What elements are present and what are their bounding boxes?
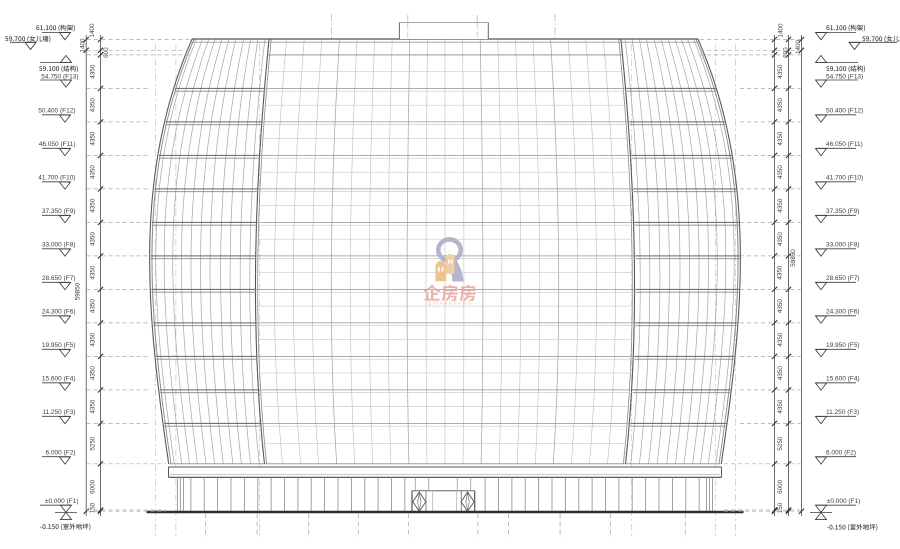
svg-text:±0.000 (F1): ±0.000 (F1) bbox=[45, 498, 79, 505]
svg-text:4350: 4350 bbox=[89, 399, 96, 414]
svg-text:600: 600 bbox=[103, 47, 110, 58]
svg-text:59850: 59850 bbox=[790, 249, 797, 267]
svg-text:50.400 (F12): 50.400 (F12) bbox=[826, 108, 863, 115]
svg-text:4350: 4350 bbox=[777, 332, 784, 347]
svg-text:QIFANGFANG: QIFANGFANG bbox=[428, 301, 473, 306]
svg-text:6.000 (F2): 6.000 (F2) bbox=[46, 449, 76, 456]
svg-text:4350: 4350 bbox=[89, 366, 96, 381]
svg-text:24.300 (F6): 24.300 (F6) bbox=[826, 309, 860, 316]
svg-text:33.000 (F8): 33.000 (F8) bbox=[42, 242, 76, 249]
svg-text:28.650 (F7): 28.650 (F7) bbox=[42, 275, 76, 282]
svg-text:4350: 4350 bbox=[90, 165, 97, 180]
svg-text:4350: 4350 bbox=[90, 131, 97, 146]
svg-text:6.000 (F2): 6.000 (F2) bbox=[826, 449, 856, 456]
svg-text:5250: 5250 bbox=[777, 436, 784, 451]
svg-text:6000: 6000 bbox=[90, 479, 97, 494]
svg-text:150: 150 bbox=[90, 502, 97, 513]
svg-text:24.300 (F6): 24.300 (F6) bbox=[42, 309, 76, 316]
svg-text:600: 600 bbox=[782, 47, 789, 58]
svg-text:15.600 (F4): 15.600 (F4) bbox=[42, 376, 76, 383]
svg-text:37.350 (F9): 37.350 (F9) bbox=[826, 208, 860, 215]
svg-text:4350: 4350 bbox=[90, 64, 97, 79]
svg-text:4350: 4350 bbox=[777, 265, 784, 280]
svg-text:150: 150 bbox=[777, 502, 784, 513]
svg-text:19.950 (F5): 19.950 (F5) bbox=[42, 342, 76, 349]
svg-text:28.650 (F7): 28.650 (F7) bbox=[826, 275, 860, 282]
svg-text:4350: 4350 bbox=[777, 366, 784, 381]
svg-text:4350: 4350 bbox=[90, 232, 97, 247]
svg-text:33.000 (F8): 33.000 (F8) bbox=[826, 242, 860, 249]
svg-text:59850: 59850 bbox=[75, 282, 82, 300]
svg-text:4350: 4350 bbox=[777, 299, 784, 314]
svg-text:41.700 (F10): 41.700 (F10) bbox=[826, 175, 863, 182]
svg-text:4350: 4350 bbox=[90, 198, 97, 213]
svg-text:5250: 5250 bbox=[90, 436, 97, 451]
svg-text:4350: 4350 bbox=[777, 64, 784, 79]
svg-text:4350: 4350 bbox=[777, 232, 784, 247]
svg-text:37.350 (F9): 37.350 (F9) bbox=[42, 208, 76, 215]
svg-text:46.050 (F11): 46.050 (F11) bbox=[39, 141, 76, 148]
svg-text:54.750 (F13): 54.750 (F13) bbox=[41, 73, 78, 80]
svg-text:1400: 1400 bbox=[795, 40, 802, 55]
svg-text:50.400 (F12): 50.400 (F12) bbox=[38, 108, 75, 115]
svg-text:4350: 4350 bbox=[89, 265, 96, 280]
svg-text:1400: 1400 bbox=[80, 38, 87, 53]
svg-text:6000: 6000 bbox=[777, 479, 784, 494]
svg-text:4350: 4350 bbox=[777, 98, 784, 113]
svg-text:54.750 (F13): 54.750 (F13) bbox=[826, 73, 863, 80]
svg-text:±0.000 (F1): ±0.000 (F1) bbox=[827, 498, 861, 505]
svg-text:4350: 4350 bbox=[90, 98, 97, 113]
svg-text:4350: 4350 bbox=[777, 165, 784, 180]
svg-text:4350: 4350 bbox=[89, 332, 96, 347]
svg-text:4350: 4350 bbox=[777, 131, 784, 146]
svg-text:4350: 4350 bbox=[777, 198, 784, 213]
svg-text:11.250 (F3): 11.250 (F3) bbox=[826, 409, 859, 416]
svg-text:19.950 (F5): 19.950 (F5) bbox=[826, 342, 860, 349]
svg-text:46.050 (F11): 46.050 (F11) bbox=[826, 141, 863, 148]
svg-text:11.250 (F3): 11.250 (F3) bbox=[42, 409, 75, 416]
svg-text:1400: 1400 bbox=[89, 23, 96, 38]
svg-text:1400: 1400 bbox=[777, 23, 784, 38]
svg-text:41.700 (F10): 41.700 (F10) bbox=[38, 175, 75, 182]
svg-text:4350: 4350 bbox=[777, 399, 784, 414]
svg-text:4350: 4350 bbox=[89, 299, 96, 314]
svg-text:15.600 (F4): 15.600 (F4) bbox=[826, 376, 860, 383]
